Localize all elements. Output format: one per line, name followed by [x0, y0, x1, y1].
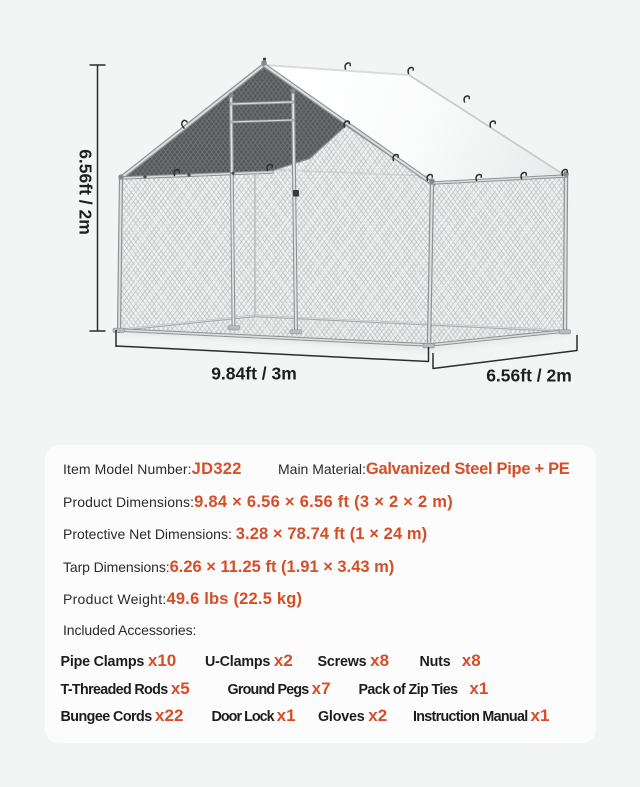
svg-text:6.56ft / 2m: 6.56ft / 2m	[76, 149, 96, 235]
svg-text:6.56ft / 2m: 6.56ft / 2m	[486, 366, 572, 386]
svg-text:9.84ft / 3m: 9.84ft / 3m	[211, 364, 297, 384]
